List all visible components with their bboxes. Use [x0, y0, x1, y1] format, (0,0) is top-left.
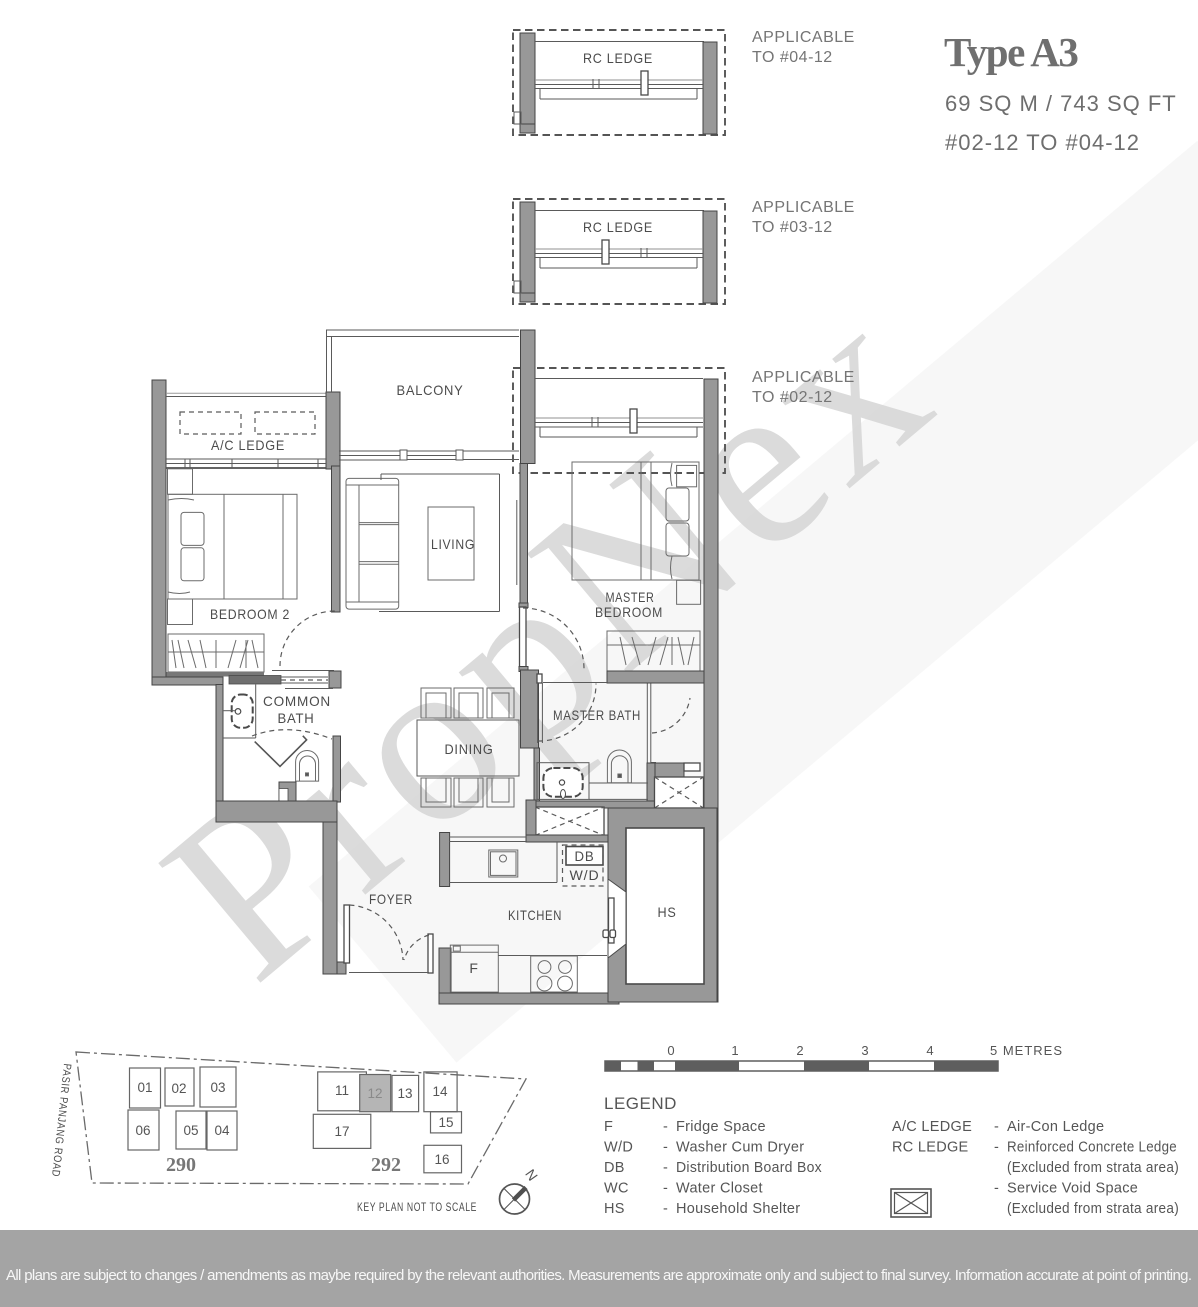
svg-text:DB: DB — [604, 1160, 625, 1176]
svg-text:TO #02-12: TO #02-12 — [752, 389, 833, 406]
svg-text:KITCHEN: KITCHEN — [508, 907, 562, 923]
svg-text:-: - — [994, 1119, 999, 1135]
svg-text:TO #04-12: TO #04-12 — [752, 49, 833, 66]
svg-text:13: 13 — [397, 1086, 412, 1101]
svg-text:Reinforced Concrete Ledge: Reinforced Concrete Ledge — [1007, 1140, 1177, 1156]
svg-text:Air-Con Ledge: Air-Con Ledge — [1007, 1119, 1104, 1135]
svg-text:COMMON: COMMON — [263, 693, 331, 709]
svg-text:MASTER BATH: MASTER BATH — [553, 707, 641, 723]
svg-text:Service Void Space: Service Void Space — [1007, 1181, 1138, 1197]
svg-text:4: 4 — [926, 1043, 933, 1058]
svg-text:-: - — [663, 1201, 668, 1217]
svg-text:F: F — [604, 1119, 613, 1135]
svg-text:-: - — [663, 1160, 668, 1176]
svg-text:MASTER: MASTER — [606, 589, 655, 605]
svg-text:DB: DB — [575, 849, 595, 864]
svg-text:2: 2 — [796, 1043, 803, 1058]
svg-text:A/C LEDGE: A/C LEDGE — [892, 1119, 972, 1135]
svg-text:12: 12 — [367, 1086, 382, 1101]
svg-text:16: 16 — [434, 1152, 449, 1167]
svg-text:17: 17 — [334, 1124, 349, 1139]
svg-text:APPLICABLE: APPLICABLE — [752, 199, 855, 216]
svg-text:(Excluded from strata area): (Excluded from strata area) — [1007, 1201, 1179, 1217]
svg-text:APPLICABLE: APPLICABLE — [752, 369, 855, 386]
svg-text:03: 03 — [210, 1080, 225, 1095]
svg-text:-: - — [994, 1181, 999, 1197]
svg-text:Distribution Board Box: Distribution Board Box — [676, 1160, 822, 1176]
svg-text:Washer Cum Dryer: Washer Cum Dryer — [676, 1140, 804, 1156]
svg-text:01: 01 — [137, 1080, 152, 1095]
svg-text:Water Closet: Water Closet — [676, 1181, 763, 1197]
svg-text:F: F — [469, 960, 478, 976]
svg-text:APPLICABLE: APPLICABLE — [752, 29, 855, 46]
svg-text:RC LEDGE: RC LEDGE — [583, 50, 653, 66]
svg-text:Fridge Space: Fridge Space — [676, 1119, 766, 1135]
svg-text:05: 05 — [183, 1123, 198, 1138]
svg-text:LEGEND: LEGEND — [604, 1094, 677, 1113]
svg-text:15: 15 — [438, 1115, 453, 1130]
svg-text:14: 14 — [432, 1084, 448, 1099]
svg-text:-: - — [663, 1181, 668, 1197]
svg-text:02: 02 — [171, 1081, 186, 1096]
svg-text:W/D: W/D — [604, 1140, 633, 1156]
svg-text:290: 290 — [166, 1154, 196, 1176]
svg-text:#02-12 TO #04-12: #02-12 TO #04-12 — [945, 130, 1140, 155]
svg-text:BEDROOM: BEDROOM — [595, 604, 663, 620]
svg-text:RC LEDGE: RC LEDGE — [892, 1140, 969, 1156]
svg-text:BALCONY: BALCONY — [397, 382, 464, 398]
svg-text:04: 04 — [214, 1123, 230, 1138]
svg-text:5 METRES: 5 METRES — [990, 1043, 1063, 1058]
svg-text:69 SQ M / 743 SQ FT: 69 SQ M / 743 SQ FT — [945, 91, 1177, 116]
svg-text:11: 11 — [335, 1083, 349, 1098]
svg-text:1: 1 — [731, 1043, 738, 1058]
svg-text:06: 06 — [135, 1123, 150, 1138]
svg-text:-: - — [994, 1140, 999, 1156]
svg-text:W/D: W/D — [570, 868, 600, 883]
svg-text:FOYER: FOYER — [369, 891, 413, 907]
svg-text:HS: HS — [604, 1201, 625, 1217]
svg-text:HS: HS — [658, 904, 677, 920]
svg-text:DINING: DINING — [445, 741, 494, 757]
svg-text:(Excluded from strata area): (Excluded from strata area) — [1007, 1160, 1179, 1176]
svg-text:Type A3: Type A3 — [944, 29, 1078, 75]
svg-text:292: 292 — [371, 1154, 401, 1176]
svg-text:A/C LEDGE: A/C LEDGE — [211, 437, 285, 453]
svg-text:All plans are subject to chang: All plans are subject to changes / amend… — [6, 1267, 1192, 1284]
svg-text:-: - — [663, 1119, 668, 1135]
svg-text:LIVING: LIVING — [431, 536, 475, 552]
svg-text:BATH: BATH — [278, 710, 315, 726]
svg-text:BEDROOM 2: BEDROOM 2 — [210, 606, 290, 622]
svg-text:3: 3 — [861, 1043, 868, 1058]
svg-text:TO #03-12: TO #03-12 — [752, 219, 833, 236]
svg-text:-: - — [663, 1140, 668, 1156]
svg-text:Household Shelter: Household Shelter — [676, 1201, 800, 1217]
svg-text:RC LEDGE: RC LEDGE — [583, 219, 653, 235]
svg-text:KEY PLAN NOT TO SCALE: KEY PLAN NOT TO SCALE — [357, 1202, 477, 1214]
svg-text:WC: WC — [604, 1181, 629, 1197]
svg-text:0: 0 — [667, 1043, 674, 1058]
